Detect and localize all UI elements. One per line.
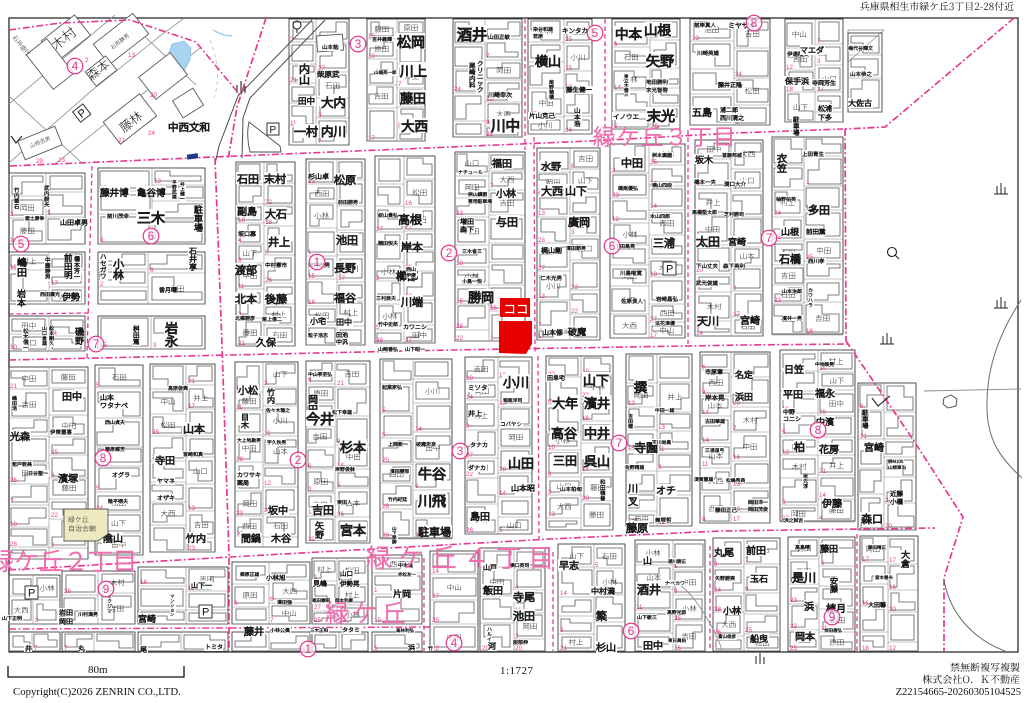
svg-text:21: 21 — [188, 378, 195, 385]
svg-text:17: 17 — [889, 557, 896, 564]
svg-text:3: 3 — [782, 499, 786, 506]
svg-text:14: 14 — [614, 84, 621, 91]
svg-text:22: 22 — [456, 335, 463, 342]
svg-text:17: 17 — [733, 516, 740, 523]
svg-text:13: 13 — [692, 35, 699, 42]
svg-text:7: 7 — [10, 498, 14, 505]
svg-text:21: 21 — [860, 433, 867, 440]
svg-text:14: 14 — [466, 394, 473, 401]
svg-text:24: 24 — [714, 587, 721, 594]
svg-text:4: 4 — [451, 636, 458, 650]
svg-text:5: 5 — [18, 237, 25, 251]
svg-text:16: 16 — [140, 579, 147, 586]
svg-text:13: 13 — [538, 210, 545, 217]
svg-text:11: 11 — [636, 604, 643, 611]
svg-text:7: 7 — [93, 337, 100, 351]
svg-text:2: 2 — [47, 210, 51, 217]
svg-text:2: 2 — [100, 281, 104, 288]
svg-text:1: 1 — [674, 563, 678, 570]
svg-text:2: 2 — [264, 507, 268, 514]
svg-text:18: 18 — [862, 645, 869, 652]
svg-text:3: 3 — [515, 633, 519, 640]
svg-text:26: 26 — [64, 588, 71, 595]
svg-text:1: 1 — [308, 249, 312, 256]
svg-text:6: 6 — [270, 596, 274, 603]
svg-text:22: 22 — [790, 623, 797, 630]
svg-text:10: 10 — [10, 344, 17, 351]
svg-text:2: 2 — [51, 542, 55, 549]
svg-text:7: 7 — [616, 436, 623, 450]
svg-text:9: 9 — [829, 610, 836, 624]
svg-text:16: 16 — [889, 584, 896, 591]
svg-text:17: 17 — [51, 280, 58, 287]
svg-text:26: 26 — [819, 409, 826, 416]
svg-text:13: 13 — [658, 424, 665, 431]
svg-text:18: 18 — [786, 86, 793, 93]
svg-text:1: 1 — [806, 179, 810, 186]
svg-text:23: 23 — [774, 297, 781, 304]
svg-text:18: 18 — [238, 217, 245, 224]
svg-text:7: 7 — [318, 138, 322, 145]
svg-text:25: 25 — [790, 645, 797, 652]
svg-text:27: 27 — [405, 337, 412, 344]
svg-text:8: 8 — [815, 423, 822, 437]
svg-text:15: 15 — [456, 298, 463, 305]
svg-text:27: 27 — [314, 604, 321, 611]
svg-text:6: 6 — [415, 483, 419, 490]
svg-text:15: 15 — [374, 617, 381, 624]
svg-text:5: 5 — [592, 26, 599, 40]
svg-text:3: 3 — [51, 472, 55, 479]
svg-text:15: 15 — [565, 65, 572, 72]
svg-text:21: 21 — [337, 380, 344, 387]
svg-text:3: 3 — [355, 37, 362, 51]
svg-text:23: 23 — [188, 545, 195, 552]
svg-text:9: 9 — [466, 423, 470, 430]
svg-text:27: 27 — [432, 593, 439, 600]
svg-text:3: 3 — [457, 444, 464, 458]
svg-text:14: 14 — [702, 409, 709, 416]
svg-text:25: 25 — [382, 457, 389, 464]
svg-text:28: 28 — [714, 606, 721, 613]
svg-text:23: 23 — [456, 210, 463, 217]
svg-text:18: 18 — [650, 271, 657, 278]
svg-text:3: 3 — [817, 58, 821, 65]
svg-text:8: 8 — [100, 451, 107, 465]
svg-text:23: 23 — [612, 192, 619, 199]
svg-text:10: 10 — [368, 53, 375, 60]
svg-text:21: 21 — [819, 468, 826, 475]
svg-text:14: 14 — [499, 490, 506, 497]
svg-text:28: 28 — [499, 466, 506, 473]
svg-text:21: 21 — [560, 645, 567, 652]
svg-text:5: 5 — [337, 482, 341, 489]
svg-text:3: 3 — [548, 489, 552, 496]
svg-text:8: 8 — [702, 516, 706, 523]
svg-text:6: 6 — [548, 398, 552, 405]
svg-text:8: 8 — [751, 16, 758, 30]
svg-text:17: 17 — [733, 311, 740, 318]
svg-text:7: 7 — [766, 231, 773, 245]
svg-text:P: P — [270, 125, 277, 136]
svg-text:24: 24 — [454, 86, 461, 93]
svg-text:5: 5 — [374, 645, 378, 652]
svg-text:4: 4 — [238, 237, 242, 244]
svg-text:6: 6 — [308, 463, 312, 470]
svg-text:3: 3 — [612, 167, 616, 174]
svg-text:14: 14 — [650, 203, 657, 210]
svg-text:80m: 80m — [88, 664, 108, 676]
svg-text:20: 20 — [515, 645, 522, 652]
svg-text:21: 21 — [118, 137, 125, 144]
svg-text:23: 23 — [571, 284, 578, 291]
svg-text:12: 12 — [264, 480, 271, 487]
svg-text:6: 6 — [609, 239, 616, 253]
svg-text:12: 12 — [782, 449, 789, 456]
svg-text:6: 6 — [234, 600, 238, 607]
svg-text:24: 24 — [565, 127, 572, 134]
svg-text:11: 11 — [264, 430, 271, 437]
svg-text:13: 13 — [154, 178, 161, 185]
svg-text:28: 28 — [382, 503, 389, 510]
svg-text:11: 11 — [658, 446, 665, 453]
svg-text:20: 20 — [733, 400, 740, 407]
svg-text:1: 1 — [490, 335, 494, 342]
svg-text:20: 20 — [889, 606, 896, 613]
svg-text:3: 3 — [560, 627, 564, 634]
svg-text:25: 25 — [432, 617, 439, 624]
svg-text:20: 20 — [150, 92, 157, 99]
svg-text:22: 22 — [571, 308, 578, 315]
svg-text:5: 5 — [782, 429, 786, 436]
svg-text:23: 23 — [538, 237, 545, 244]
svg-text:12: 12 — [612, 216, 619, 223]
svg-text:7: 7 — [398, 81, 402, 88]
svg-text:5: 5 — [614, 123, 618, 130]
svg-text:10: 10 — [10, 521, 17, 528]
svg-text:27: 27 — [538, 265, 545, 272]
svg-text:11: 11 — [702, 461, 709, 468]
svg-text:6: 6 — [860, 403, 864, 410]
svg-text:24: 24 — [735, 71, 742, 78]
svg-text:1:1727: 1:1727 — [500, 665, 534, 677]
svg-text:26: 26 — [337, 511, 344, 518]
svg-text:3: 3 — [35, 617, 39, 624]
svg-text:4: 4 — [72, 59, 79, 73]
svg-text:5: 5 — [595, 562, 599, 569]
svg-text:12: 12 — [889, 645, 896, 652]
svg-text:7: 7 — [817, 38, 821, 45]
svg-text:18: 18 — [236, 456, 243, 463]
svg-text:6: 6 — [821, 560, 825, 567]
svg-text:24: 24 — [148, 130, 155, 137]
svg-text:8: 8 — [571, 163, 575, 170]
svg-text:22: 22 — [466, 471, 473, 478]
svg-text:25: 25 — [490, 305, 497, 312]
svg-text:22: 22 — [265, 199, 272, 206]
svg-text:21: 21 — [10, 383, 17, 390]
svg-text:3: 3 — [658, 464, 662, 471]
svg-text:Copyright(C)2026 ZENRIN CO.,LT: Copyright(C)2026 ZENRIN CO.,LTD. — [13, 686, 181, 698]
svg-text:3: 3 — [308, 486, 312, 493]
svg-text:P: P — [28, 588, 35, 600]
svg-text:8: 8 — [733, 285, 737, 292]
svg-text:13: 13 — [628, 400, 635, 407]
svg-text:4: 4 — [819, 515, 823, 522]
svg-text:6: 6 — [548, 471, 552, 478]
svg-text:2: 2 — [376, 275, 380, 282]
svg-text:5: 5 — [382, 432, 386, 439]
svg-text:18: 18 — [265, 219, 272, 226]
svg-text:14: 14 — [560, 590, 567, 597]
svg-text:28: 28 — [466, 527, 473, 534]
svg-text:13: 13 — [128, 52, 135, 59]
svg-text:14: 14 — [432, 568, 439, 575]
svg-text:23: 23 — [236, 510, 243, 517]
svg-text:3: 3 — [10, 211, 14, 218]
svg-text:6: 6 — [265, 249, 269, 256]
svg-text:26: 26 — [10, 477, 17, 484]
svg-text:21: 21 — [238, 340, 245, 347]
svg-text:22: 22 — [51, 512, 58, 519]
svg-text:2: 2 — [295, 453, 302, 467]
svg-text:P: P — [202, 607, 209, 619]
svg-text:1: 1 — [305, 642, 312, 656]
svg-text:2: 2 — [85, 57, 89, 64]
svg-text:1: 1 — [314, 255, 321, 269]
svg-text:20: 20 — [382, 532, 389, 539]
svg-text:14: 14 — [696, 330, 703, 337]
svg-text:5: 5 — [96, 382, 100, 389]
svg-text:2: 2 — [446, 246, 453, 260]
svg-text:25: 25 — [745, 627, 752, 634]
svg-text:7: 7 — [64, 645, 68, 652]
svg-text:3: 3 — [153, 342, 157, 349]
svg-text:21: 21 — [290, 77, 297, 84]
svg-text:13: 13 — [548, 511, 555, 518]
svg-text:5: 5 — [382, 407, 386, 414]
svg-text:10: 10 — [548, 444, 555, 451]
svg-text:25: 25 — [314, 617, 321, 624]
svg-text:9: 9 — [308, 377, 312, 384]
svg-text:7: 7 — [270, 617, 274, 624]
svg-text:25: 25 — [565, 36, 572, 43]
svg-text:11: 11 — [238, 283, 245, 290]
svg-text:17: 17 — [862, 556, 869, 563]
svg-text:14: 14 — [415, 426, 422, 433]
svg-text:15: 15 — [674, 645, 681, 652]
svg-text:1: 1 — [374, 587, 378, 594]
svg-text:16: 16 — [582, 415, 589, 422]
svg-text:27: 27 — [376, 226, 383, 233]
svg-text:16: 16 — [806, 328, 813, 335]
svg-text:25: 25 — [152, 429, 159, 436]
svg-text:P: P — [666, 264, 673, 276]
svg-text:Z22154665-20260305104525: Z22154665-20260305104525 — [896, 687, 1021, 698]
svg-text:16: 16 — [308, 299, 315, 306]
svg-text:3: 3 — [318, 112, 322, 119]
svg-text:15: 15 — [308, 273, 315, 280]
svg-text:9: 9 — [486, 119, 490, 126]
svg-text:9: 9 — [674, 588, 678, 595]
svg-text:26: 26 — [265, 277, 272, 284]
svg-text:17: 17 — [650, 332, 657, 339]
svg-text:16: 16 — [733, 454, 740, 461]
svg-text:7: 7 — [486, 53, 490, 60]
svg-text:7: 7 — [733, 425, 737, 432]
svg-text:20: 20 — [582, 495, 589, 502]
svg-text:20: 20 — [466, 375, 473, 382]
svg-text:17: 17 — [338, 275, 345, 282]
svg-text:3: 3 — [264, 380, 268, 387]
svg-text:16: 16 — [405, 200, 412, 207]
svg-text:28: 28 — [10, 541, 17, 548]
svg-text:17: 17 — [188, 403, 195, 410]
svg-text:28: 28 — [376, 337, 383, 344]
svg-text:18: 18 — [456, 260, 463, 267]
svg-text:8: 8 — [100, 237, 104, 244]
svg-text:13: 13 — [188, 505, 195, 512]
svg-text:13: 13 — [538, 293, 545, 300]
svg-text:8: 8 — [238, 257, 242, 264]
svg-text:25: 25 — [650, 159, 657, 166]
svg-text:4: 4 — [515, 584, 519, 591]
svg-text:8: 8 — [714, 561, 718, 568]
svg-text:3: 3 — [571, 229, 575, 236]
svg-text:28: 28 — [456, 323, 463, 330]
svg-text:6: 6 — [148, 229, 155, 243]
svg-text:5: 5 — [499, 527, 503, 534]
svg-text:27: 27 — [817, 86, 824, 93]
svg-text:9: 9 — [103, 582, 110, 596]
svg-text:5: 5 — [96, 485, 100, 492]
svg-text:7: 7 — [745, 557, 749, 564]
svg-text:25: 25 — [674, 615, 681, 622]
svg-text:9: 9 — [745, 586, 749, 593]
svg-text:7: 7 — [490, 183, 494, 190]
svg-text:7: 7 — [34, 645, 38, 652]
svg-text:14: 14 — [702, 437, 709, 444]
svg-text:6: 6 — [614, 41, 618, 48]
svg-text:12: 12 — [786, 64, 793, 71]
svg-text:7: 7 — [538, 322, 542, 329]
svg-text:24: 24 — [774, 210, 781, 217]
svg-text:11: 11 — [236, 404, 243, 411]
svg-text:25: 25 — [51, 449, 58, 456]
svg-text:6: 6 — [628, 624, 635, 638]
svg-text:6: 6 — [150, 267, 154, 274]
svg-text:23: 23 — [790, 597, 797, 604]
svg-text:17: 17 — [368, 135, 375, 142]
